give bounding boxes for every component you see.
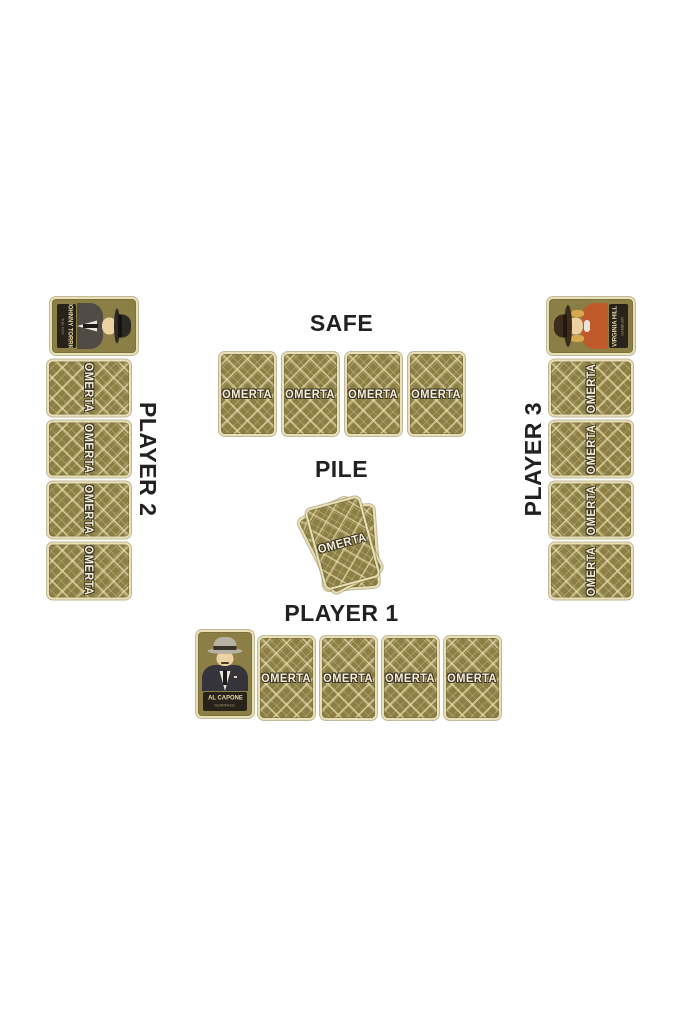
hat-band-icon: [118, 315, 122, 338]
player1-character-slot: AL CAPONE SCARFACE: [196, 630, 254, 718]
card-back-text: OMERTA: [448, 671, 498, 685]
player2-character-slot: JOHNNY TORRIO THE FOX: [50, 297, 138, 355]
player3-character-card[interactable]: VIRGINIA HILL GAMBLER: [547, 297, 635, 355]
player3-hand-card[interactable]: OMERTA: [549, 359, 633, 416]
character-illustration: [77, 301, 134, 351]
draw-pile: OMERTA: [314, 501, 371, 585]
card-back-text: OMERTA: [82, 363, 96, 413]
card-back-text: OMERTA: [262, 671, 312, 685]
card-back-text: OMERTA: [386, 671, 436, 685]
scarf-icon: [584, 320, 590, 332]
hat-band-icon: [214, 646, 237, 650]
character-subtitle: SCARFACE: [215, 704, 236, 707]
player2-hand-slot: OMERTA: [47, 359, 131, 416]
player3-hand-slot: OMERTA: [549, 420, 633, 477]
player2-hand-slot: OMERTA: [47, 481, 131, 538]
card-back-text: OMERTA: [411, 387, 461, 401]
card-back-text: OMERTA: [348, 387, 398, 401]
card-back-text: OMERTA: [584, 485, 598, 535]
safe-card[interactable]: OMERTA: [282, 352, 339, 436]
character-illustration: [551, 301, 608, 351]
tie-icon: [223, 670, 227, 685]
safe-card-row: OMERTA OMERTA OMERTA OMERTA: [219, 352, 465, 436]
character-name-band: AL CAPONE SCARFACE: [203, 692, 247, 711]
card-back-text: OMERTA: [285, 387, 335, 401]
tie-icon: [83, 324, 98, 328]
card-back-text: OMERTA: [317, 530, 369, 556]
player3-label: PLAYER 3: [520, 402, 547, 516]
player1-hand-card[interactable]: OMERTA: [320, 636, 377, 720]
card-back-text: OMERTA: [584, 363, 598, 413]
character-name-band: JOHNNY TORRIO THE FOX: [57, 304, 76, 348]
player3-hand-card[interactable]: OMERTA: [549, 542, 633, 599]
card-back-text: OMERTA: [82, 546, 96, 596]
game-board: SAFE OMERTA OMERTA OMERTA OMERTA PILE OM…: [0, 0, 683, 1024]
card-back-text: OMERTA: [584, 546, 598, 596]
character-name: JOHNNY TORRIO: [67, 304, 73, 348]
player3-hand-slot: OMERTA: [549, 359, 633, 416]
player3-hand-slot: OMERTA: [549, 481, 633, 538]
player2-hand-slot: OMERTA: [47, 420, 131, 477]
player2-hand-card[interactable]: OMERTA: [47, 359, 131, 416]
player2-label: PLAYER 2: [134, 402, 161, 516]
character-name: VIRGINIA HILL: [612, 306, 618, 347]
player1-hand-card[interactable]: OMERTA: [382, 636, 439, 720]
character-name: AL CAPONE: [208, 695, 243, 701]
player3-hand-slot: OMERTA: [549, 542, 633, 599]
player2-hand-card[interactable]: OMERTA: [47, 542, 131, 599]
character-subtitle: GAMBLER: [621, 317, 624, 336]
player1-hand-card[interactable]: OMERTA: [444, 636, 501, 720]
character-illustration: [200, 634, 250, 691]
player1-character-card[interactable]: AL CAPONE SCARFACE: [196, 630, 254, 718]
player2-hand-slot: OMERTA: [47, 542, 131, 599]
hair-icon: [571, 335, 584, 342]
safe-card[interactable]: OMERTA: [345, 352, 402, 436]
player3-hand-card[interactable]: OMERTA: [549, 420, 633, 477]
card-back-text: OMERTA: [222, 387, 272, 401]
player2-hand-card[interactable]: OMERTA: [47, 420, 131, 477]
hair-icon: [571, 310, 584, 317]
character-subtitle: THE FOX: [61, 318, 64, 335]
mustache-icon: [221, 662, 229, 664]
player1-hand-row: OMERTA OMERTA OMERTA OMERTA: [258, 636, 501, 720]
player2-hand-card[interactable]: OMERTA: [47, 481, 131, 538]
card-back-text: OMERTA: [324, 671, 374, 685]
player2-character-card[interactable]: JOHNNY TORRIO THE FOX: [50, 297, 138, 355]
card-back-text: OMERTA: [584, 424, 598, 474]
card-back-text: OMERTA: [82, 485, 96, 535]
player3-character-slot: VIRGINIA HILL GAMBLER: [547, 297, 635, 355]
safe-card[interactable]: OMERTA: [219, 352, 276, 436]
player1-label: PLAYER 1: [0, 600, 683, 627]
character-name-band: VIRGINIA HILL GAMBLER: [609, 304, 628, 348]
hat-band-icon: [563, 315, 567, 338]
player3-hand-card[interactable]: OMERTA: [549, 481, 633, 538]
pocket-square-icon: [234, 676, 237, 678]
card-back-text: OMERTA: [82, 424, 96, 474]
player1-hand-card[interactable]: OMERTA: [258, 636, 315, 720]
safe-card[interactable]: OMERTA: [408, 352, 465, 436]
